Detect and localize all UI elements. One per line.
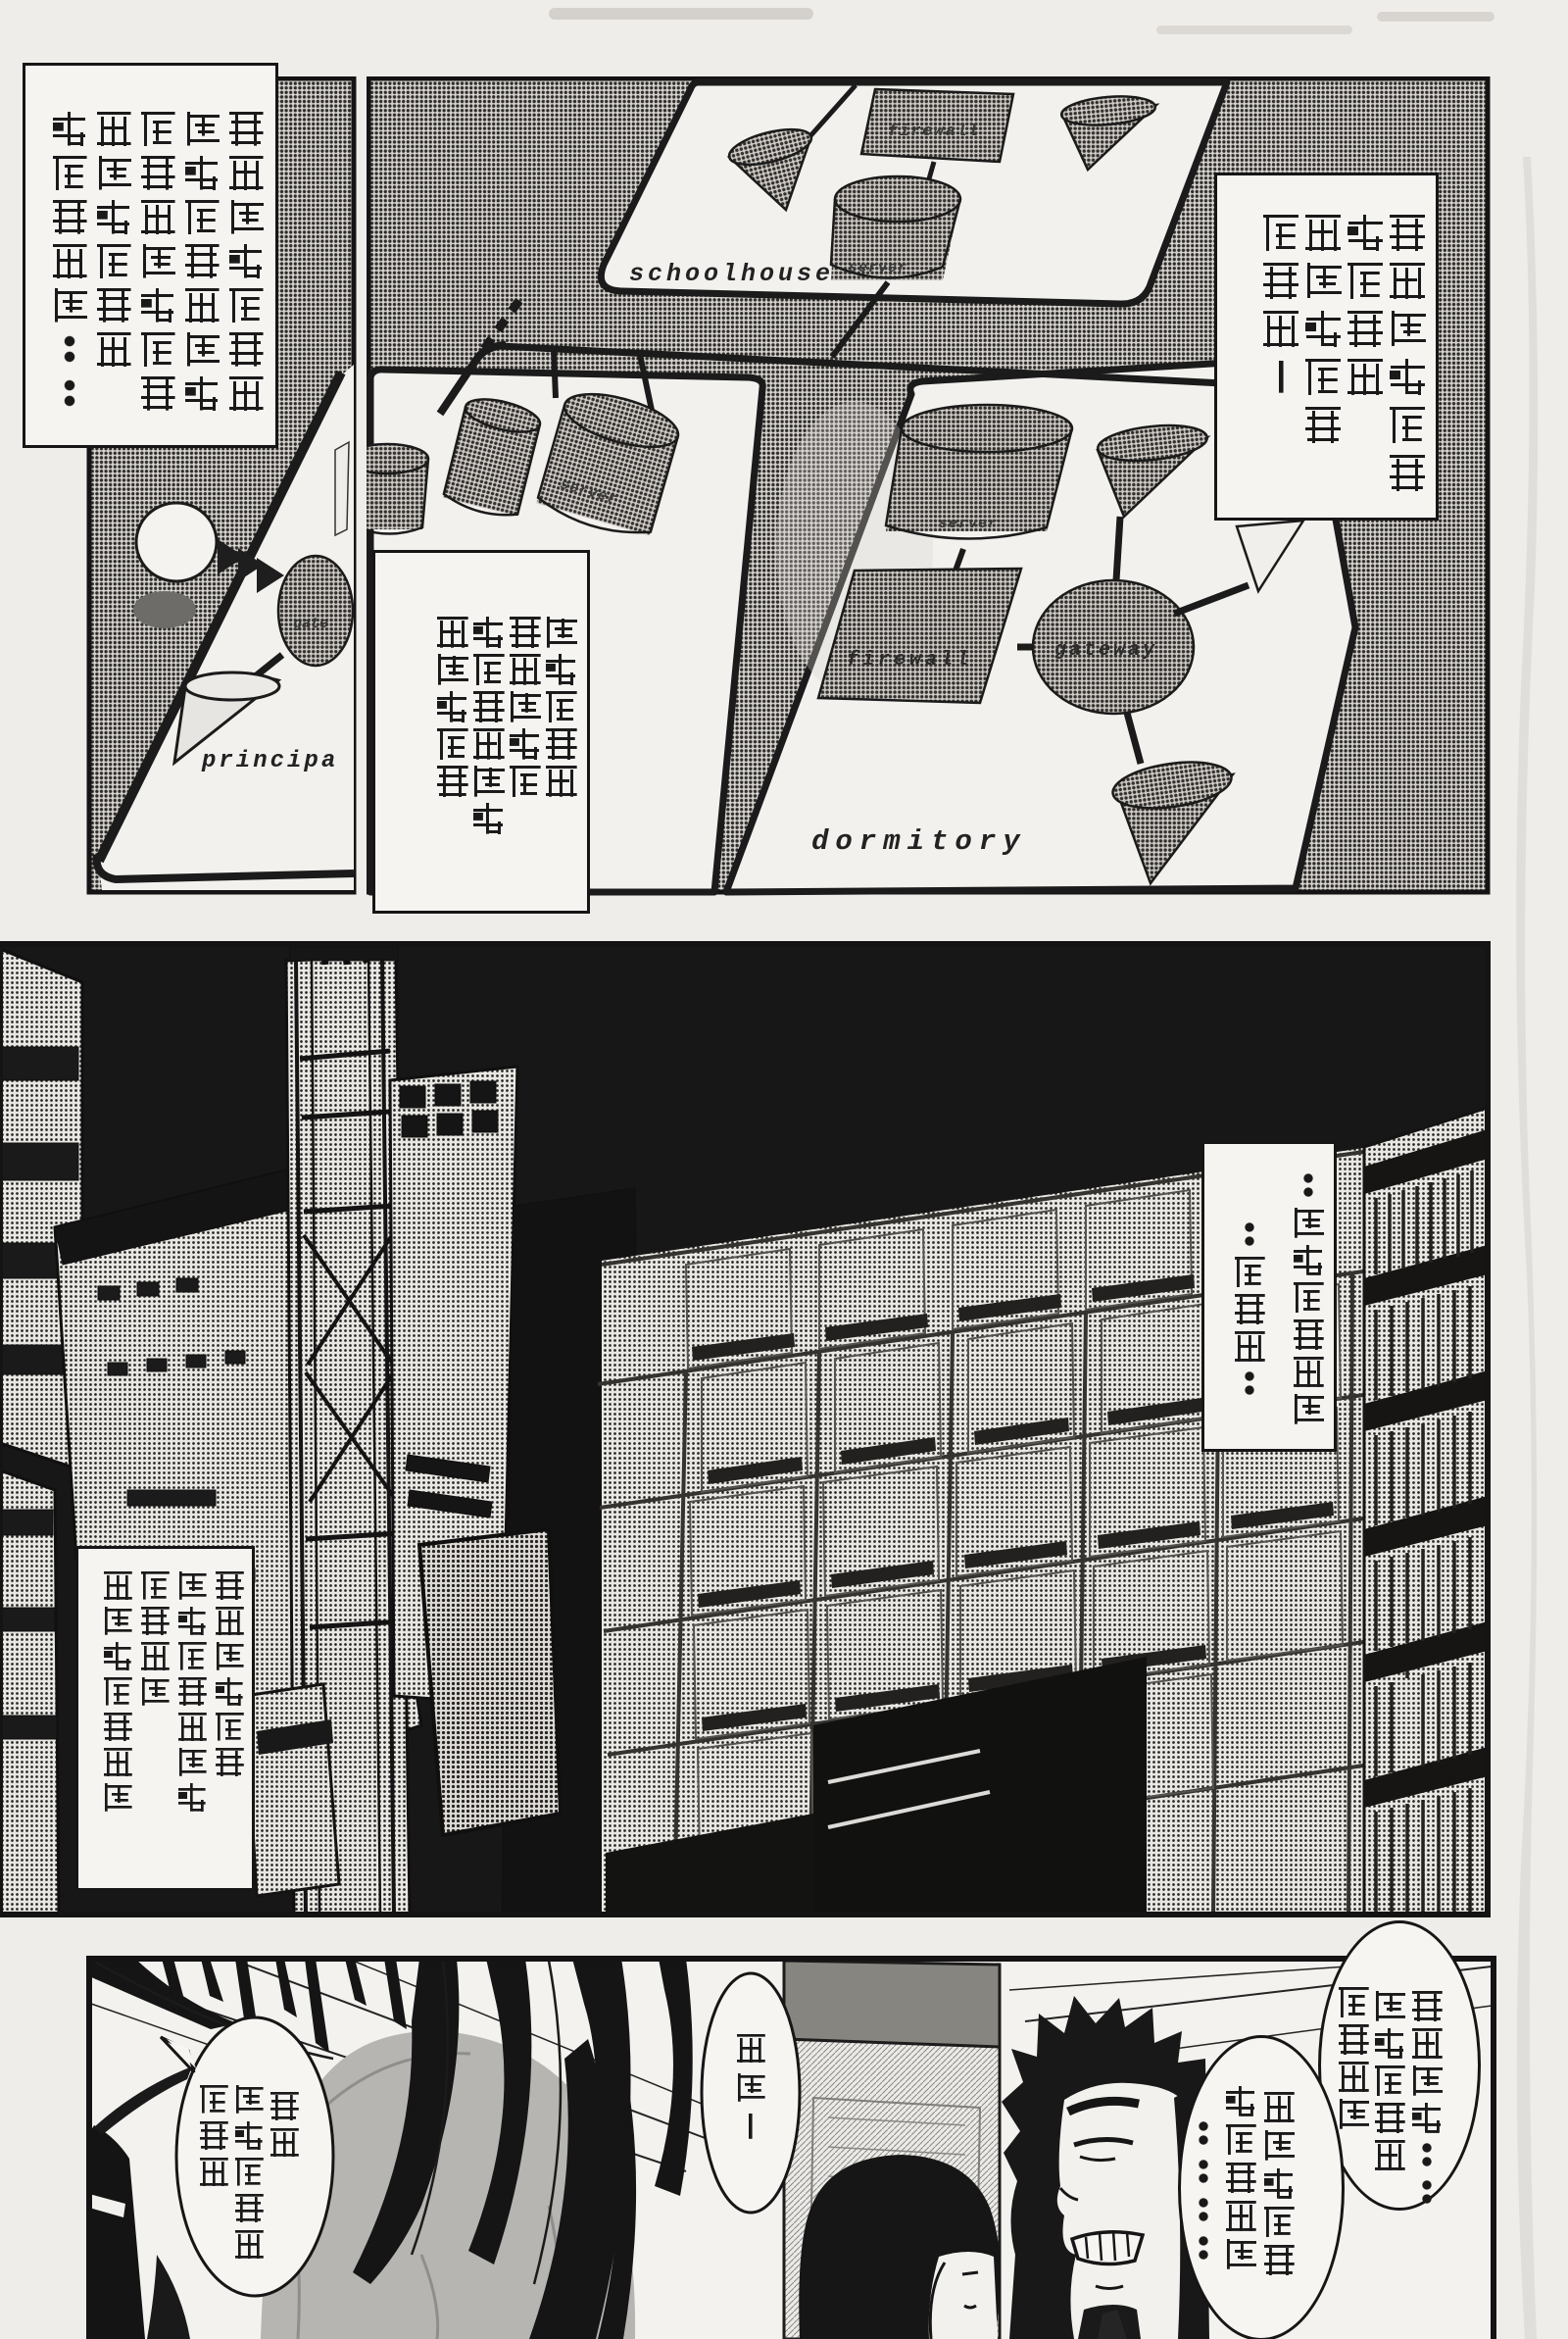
svg-text:schoolhouse: schoolhouse (629, 260, 834, 288)
svg-text:firewall: firewall (888, 123, 980, 141)
svg-text:server: server (849, 260, 907, 276)
svg-text:gateway: gateway (1054, 639, 1157, 662)
svg-text:principa: principa (201, 748, 338, 774)
svg-text:gate: gate (293, 616, 328, 632)
svg-text:firewall: firewall (847, 649, 972, 672)
svg-text:dormitory: dormitory (811, 825, 1027, 858)
svg-text:server: server (939, 516, 998, 532)
